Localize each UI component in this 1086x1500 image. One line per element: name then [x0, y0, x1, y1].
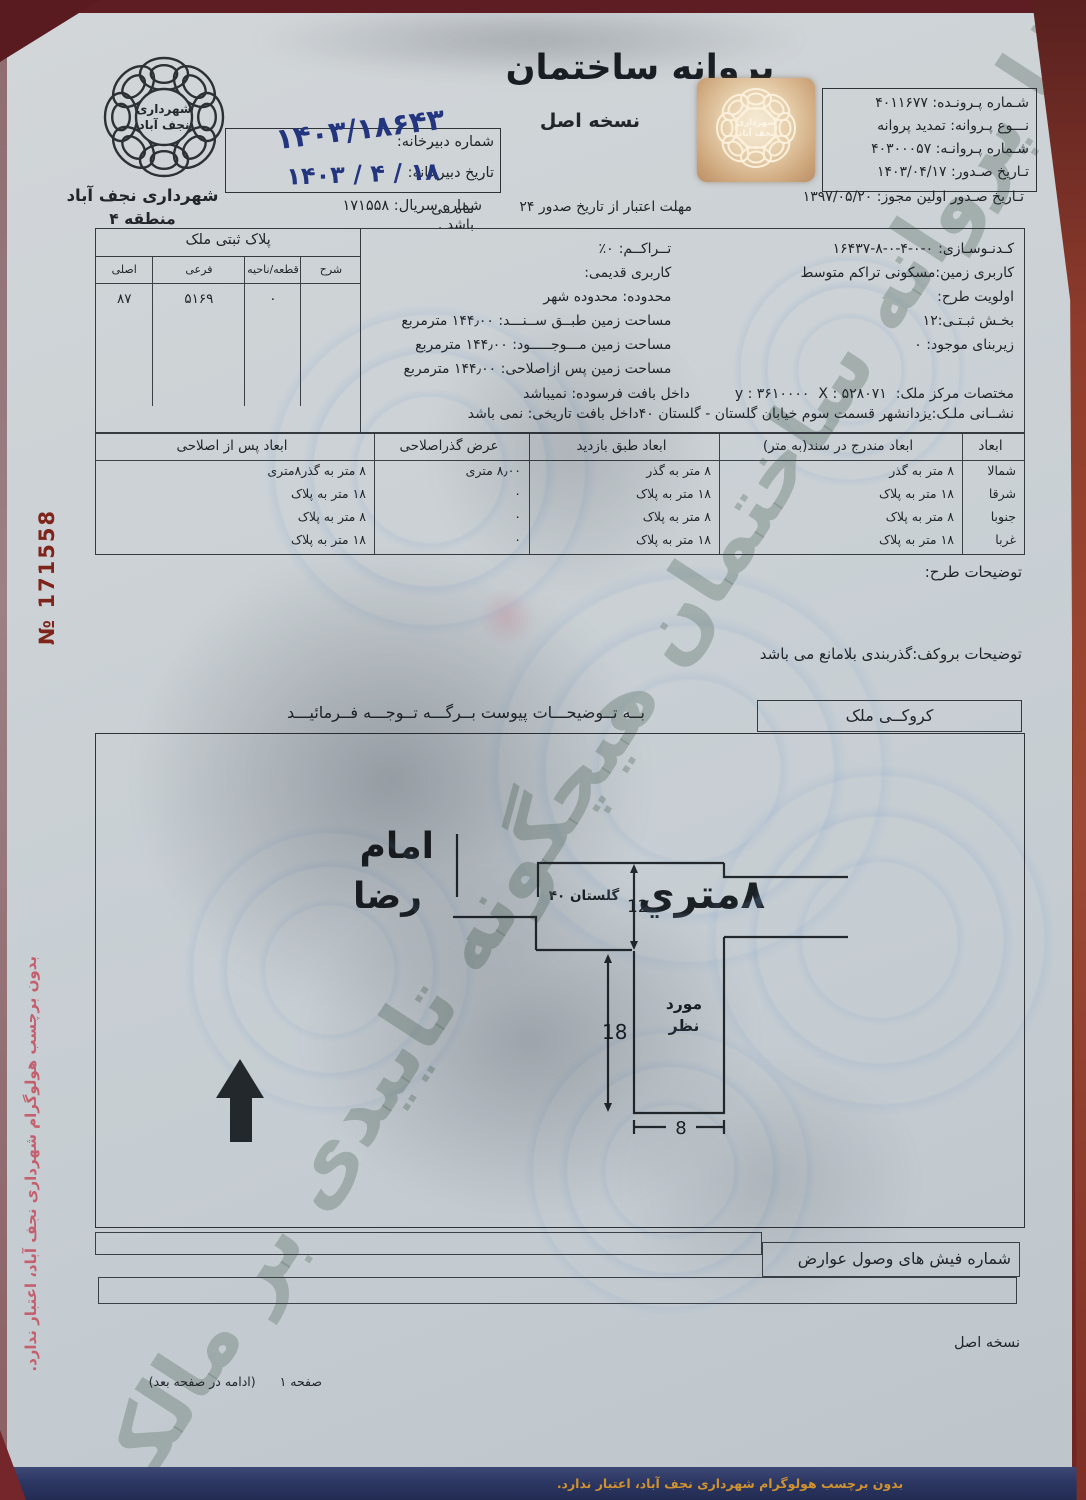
first-issue-date: تـاریخ صـدور اولین مجوز: ۱۳۹۷/۰۵/۲۰ — [700, 189, 1024, 205]
dims-cell: غربا — [962, 530, 1024, 554]
property-address: نشــانی ملـک:یزدانشهر قسمت سوم خیابان گل… — [367, 406, 1014, 431]
plate-header-ghete: قطعه/ناحیه — [244, 257, 300, 284]
copy-type-label: نسخه اصل — [480, 110, 700, 132]
fees-receipts-label: شماره فیش های وصول عوارض — [762, 1242, 1020, 1277]
copy-type-footer: نسخه اصل — [900, 1335, 1020, 1351]
issue-date: تـاریخ صـدور: ۱۴۰۳/۰۴/۱۷ — [826, 161, 1029, 184]
plate-value-asli: ۸۷ — [96, 284, 152, 406]
dim-12: 12 — [627, 897, 649, 917]
dims-cell: ۱۸ متر به پلاک — [719, 484, 962, 507]
density-label: تــراکــم: — [619, 241, 672, 257]
density-value: ٪۰ — [599, 241, 614, 257]
photo-edge — [0, 0, 1086, 13]
scanned-building-permit: صرفا پروانه ساختمان هیچگونه تاییدی بر ما… — [0, 0, 1086, 1500]
dims-cell: ۱۸ متر به پلاک — [96, 530, 374, 554]
permit-info-box: شـماره پـرونـده: ۴۰۱۱۶۷۷ نـــوع پـروانه:… — [822, 88, 1037, 192]
coords-x: X : ۵۲۸۰۷۱ — [818, 386, 886, 402]
field-row: بخـش ثبـتـی:۱۲ مساحت زمین طبــق ســنـــد… — [367, 309, 1014, 333]
mandala-center — [478, 588, 536, 646]
validity-period: مهلت اعتبار از تاریخ صدور ۲۴ — [470, 199, 692, 215]
photo-edge — [0, 0, 7, 1500]
dims-cell: ۸ متر به گذر — [529, 461, 719, 484]
dims-header: ابعاد مندرج در سند(به متر) — [719, 434, 962, 461]
renovation-code-label: کـدنـوسـازی: — [938, 241, 1014, 257]
dims-cell: ۱۸ متر به پلاک — [529, 530, 719, 554]
property-info-box: کـدنـوسـازی:۱۶۴۳۷-۸-۰-۴-۰-۰ تــراکــم:٪۰… — [95, 228, 1025, 433]
municipality-name: شهرداری نجف آباد — [55, 186, 230, 205]
dims-header: ابعاد طبق بازدید — [529, 434, 719, 461]
north-arrow-icon — [216, 1059, 264, 1142]
logo-text-1: شهرداری — [136, 102, 191, 116]
dim-8: 8 — [675, 1118, 686, 1139]
land-area-deed: مساحت زمین طبــق ســنـــد: ۱۴۴٫۰۰ مترمرب… — [401, 313, 671, 329]
dims-cell: ۱۸ متر به پلاک — [529, 484, 719, 507]
dims-cell: شرقا — [962, 484, 1024, 507]
plate-header-asli: اصلی — [96, 257, 152, 284]
logo-text-2: نجف آباد — [139, 117, 190, 132]
dims-cell: ۰ — [374, 507, 529, 530]
old-use-label: کاربری قدیمی: — [584, 265, 671, 281]
plan-notes-label: توضیحات طرح: — [700, 563, 1022, 581]
plate-value-ghete: ۰ — [244, 284, 300, 406]
boundary: محدوده: محدوده شهر — [543, 289, 671, 305]
municipality-logo-icon: شهرداری نجف آباد — [95, 48, 233, 186]
dims-cell: ۰ — [374, 530, 529, 554]
plate-table-title: پلاک ثبتی ملک — [96, 229, 360, 257]
attachment-note: بــه تــوضیحـــات پیوست بــرگـــه تــوجـ… — [180, 703, 752, 722]
bottom-warning-bar: بدون برچسب هولوگرام شهرداری نجف آباد، اع… — [10, 1467, 1086, 1500]
dims-header: ابعاد — [962, 434, 1024, 461]
field-row: اولویت طرح: محدوده: محدوده شهر — [367, 285, 1014, 309]
dims-cell: ۸ متر به پلاک — [719, 507, 962, 530]
side-hologram-warning: بدون برچسب هولوگرام شهرداری نجف آباد، اع… — [22, 956, 46, 1360]
land-area-after-correction: مساحت زمین پس ازاصلاحی: ۱۴۴٫۰۰ مترمربع — [404, 361, 672, 377]
field-row: مساحت زمین پس ازاصلاحی: ۱۴۴٫۰۰ مترمربع — [367, 357, 1014, 381]
registration-plate-table: پلاک ثبتی ملک شرح قطعه/ناحیه فرعی اصلی ۰… — [96, 229, 361, 432]
field-row: کـدنـوسـازی:۱۶۴۳۷-۸-۰-۴-۰-۰ تــراکــم:٪۰ — [367, 237, 1014, 261]
coordinates-row: مختصات مرکز ملک: X : ۵۲۸۰۷۱ y : ۳۶۱۰۰۰۰ … — [367, 381, 1014, 406]
side-serial-number: № 171558 — [35, 495, 65, 659]
registration-section: بخـش ثبـتـی:۱۲ — [923, 313, 1014, 329]
fees-empty-row — [95, 1232, 762, 1255]
dims-cell: ۱۸ متر به پلاک — [96, 484, 374, 507]
land-use: کاربری زمین:مسکونی تراکم متوسط — [801, 265, 1014, 281]
page-footer: صفحه ۱ (ادامه در صفحه بعد) — [112, 1374, 322, 1389]
dims-cell: ۸ متر به پلاک — [96, 507, 374, 530]
property-sketch-box: 12 18 8 — [95, 733, 1025, 1228]
continued-note: (ادامه در صفحه بعد) — [149, 1374, 256, 1389]
plate-header-sharh: شرح — [300, 257, 360, 284]
dims-cell: ۰ — [374, 484, 529, 507]
renovation-code-value: ۱۶۴۳۷-۸-۰-۴-۰-۰ — [833, 241, 933, 257]
field-row: کاربری زمین:مسکونی تراکم متوسط کاربری قد… — [367, 261, 1014, 285]
plate-value-fari: ۵۱۶۹ — [152, 284, 244, 406]
file-number: شـماره پـرونـده: ۴۰۱۱۶۷۷ — [826, 92, 1029, 115]
dims-header: عرض گذراصلاحی — [374, 434, 529, 461]
plate-value-sharh — [300, 284, 360, 406]
coords-y: y : ۳۶۱۰۰۰۰ — [735, 386, 810, 402]
dims-cell: شمالا — [962, 461, 1024, 484]
dimensions-table: ابعاد ابعاد مندرج در سند(به متر) ابعاد ط… — [95, 433, 1025, 555]
dim-18: 18 — [602, 1020, 627, 1044]
dims-cell: ۱۸ متر به پلاک — [719, 530, 962, 554]
dims-cell: ۸ متر به پلاک — [529, 507, 719, 530]
worn-fabric-status: داخل بافت فرسوده: نمیباشد — [523, 386, 690, 402]
bottom-warning-text: بدون برچسب هولوگرام شهرداری نجف آباد، اع… — [490, 1476, 970, 1491]
hologram-text-1: شهرداری — [736, 118, 775, 128]
hologram-sticker: شهرداری نجف آباد — [697, 78, 815, 182]
coords-label: مختصات مرکز ملک: — [896, 386, 1014, 402]
permit-type: نـــوع پـروانه: تمدید پروانه — [826, 115, 1029, 138]
dims-cell: جنوبا — [962, 507, 1024, 530]
land-area-existing: مساحت زمین مـــوجـــــود: ۱۴۴٫۰۰ مترمربع — [415, 337, 671, 353]
dims-header: ابعاد پس از اصلاحی — [96, 434, 374, 461]
permit-number: شـماره پـروانـه: ۴۰۳۰۰۰۵۷ — [826, 138, 1029, 161]
existing-floor-area: زیربنای موجود: ۰ — [914, 337, 1014, 353]
photo-corner — [0, 0, 100, 62]
plan-priority-label: اولویت طرح: — [937, 289, 1014, 305]
sketch-drawing: 12 18 8 — [96, 734, 1024, 1226]
field-row: زیربنای موجود: ۰ مساحت زمین مـــوجـــــو… — [367, 333, 1014, 357]
sketch-title-box: کروکــی ملک — [757, 700, 1022, 732]
dims-cell: ۸ متر به گذر۸متری — [96, 461, 374, 484]
district-label: منطقه ۴ — [55, 210, 230, 228]
dims-cell: ۸ متر به گذر — [719, 461, 962, 484]
brokaf-note: توضیحات بروکف:گذربندی بلامانع می باشد — [620, 645, 1022, 663]
page-number: صفحه ۱ — [280, 1374, 322, 1389]
plate-header-fari: فرعی — [152, 257, 244, 284]
property-fields: کـدنـوسـازی:۱۶۴۳۷-۸-۰-۴-۰-۰ تــراکــم:٪۰… — [361, 229, 1024, 432]
hologram-text-2: نجف آباد — [738, 127, 774, 139]
dims-cell: ۸٫۰۰ متری — [374, 461, 529, 484]
fees-empty-row — [98, 1277, 1017, 1304]
